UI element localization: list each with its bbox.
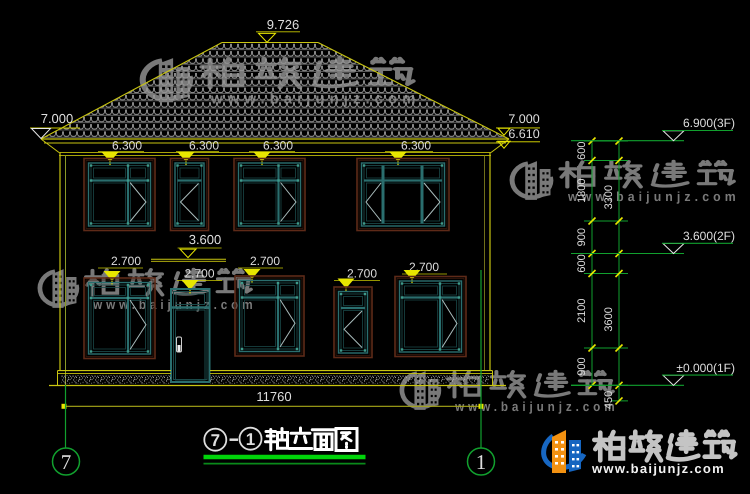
svg-text:600: 600 [576,254,588,272]
svg-text:www.baijunjz.com: www.baijunjz.com [567,190,740,205]
svg-text:6.900(3F): 6.900(3F) [683,116,735,130]
svg-text:7.000: 7.000 [508,112,539,126]
svg-text:6.300: 6.300 [189,139,219,153]
svg-text:6.300: 6.300 [401,139,431,153]
svg-text:2.700: 2.700 [184,267,214,281]
svg-text:2100: 2100 [576,298,588,322]
svg-text:2.700: 2.700 [347,267,377,281]
svg-text:3.600(2F): 3.600(2F) [683,229,735,243]
svg-text:3.600: 3.600 [189,232,222,247]
svg-text:2.700: 2.700 [250,254,280,268]
svg-text:7: 7 [211,431,220,450]
svg-text:3600: 3600 [603,307,615,331]
svg-text:900: 900 [576,357,588,375]
svg-text:6.300: 6.300 [112,139,142,153]
svg-text:6.300: 6.300 [263,139,293,153]
svg-text:900: 900 [576,228,588,246]
svg-text:7.000: 7.000 [41,111,74,126]
svg-text:±0.000(1F): ±0.000(1F) [676,361,735,375]
svg-text:1800: 1800 [576,178,588,202]
svg-text:3300: 3300 [603,185,615,209]
svg-text:www.baijunjz.com: www.baijunjz.com [591,461,725,476]
svg-text:6.610: 6.610 [508,127,539,141]
svg-text:450: 450 [603,391,615,409]
svg-text:9.726: 9.726 [267,17,300,32]
svg-text:1: 1 [246,430,255,449]
svg-text:2.700: 2.700 [111,254,141,268]
svg-text:www.baijunjz.com: www.baijunjz.com [92,298,256,313]
svg-text:600: 600 [576,142,588,160]
svg-text:7: 7 [61,450,72,474]
svg-text:11760: 11760 [256,389,291,404]
svg-text:1: 1 [476,450,487,474]
